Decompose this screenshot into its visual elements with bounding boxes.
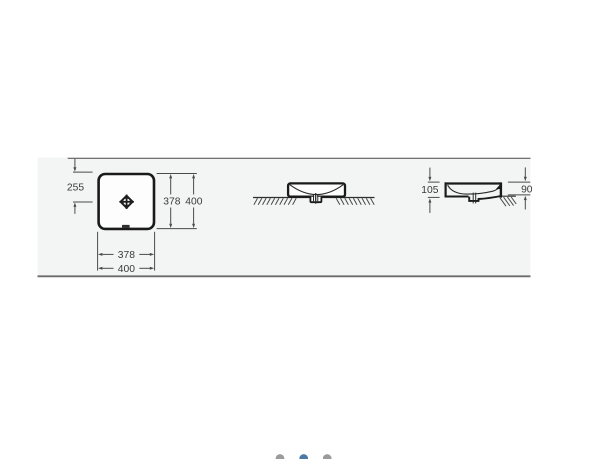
svg-text:255: 255 bbox=[67, 183, 84, 194]
svg-text:400: 400 bbox=[118, 264, 135, 275]
svg-text:400: 400 bbox=[185, 197, 202, 208]
svg-text:378: 378 bbox=[118, 250, 135, 261]
svg-text:105: 105 bbox=[421, 185, 438, 196]
svg-text:90: 90 bbox=[521, 185, 533, 196]
svg-text:378: 378 bbox=[163, 197, 180, 208]
